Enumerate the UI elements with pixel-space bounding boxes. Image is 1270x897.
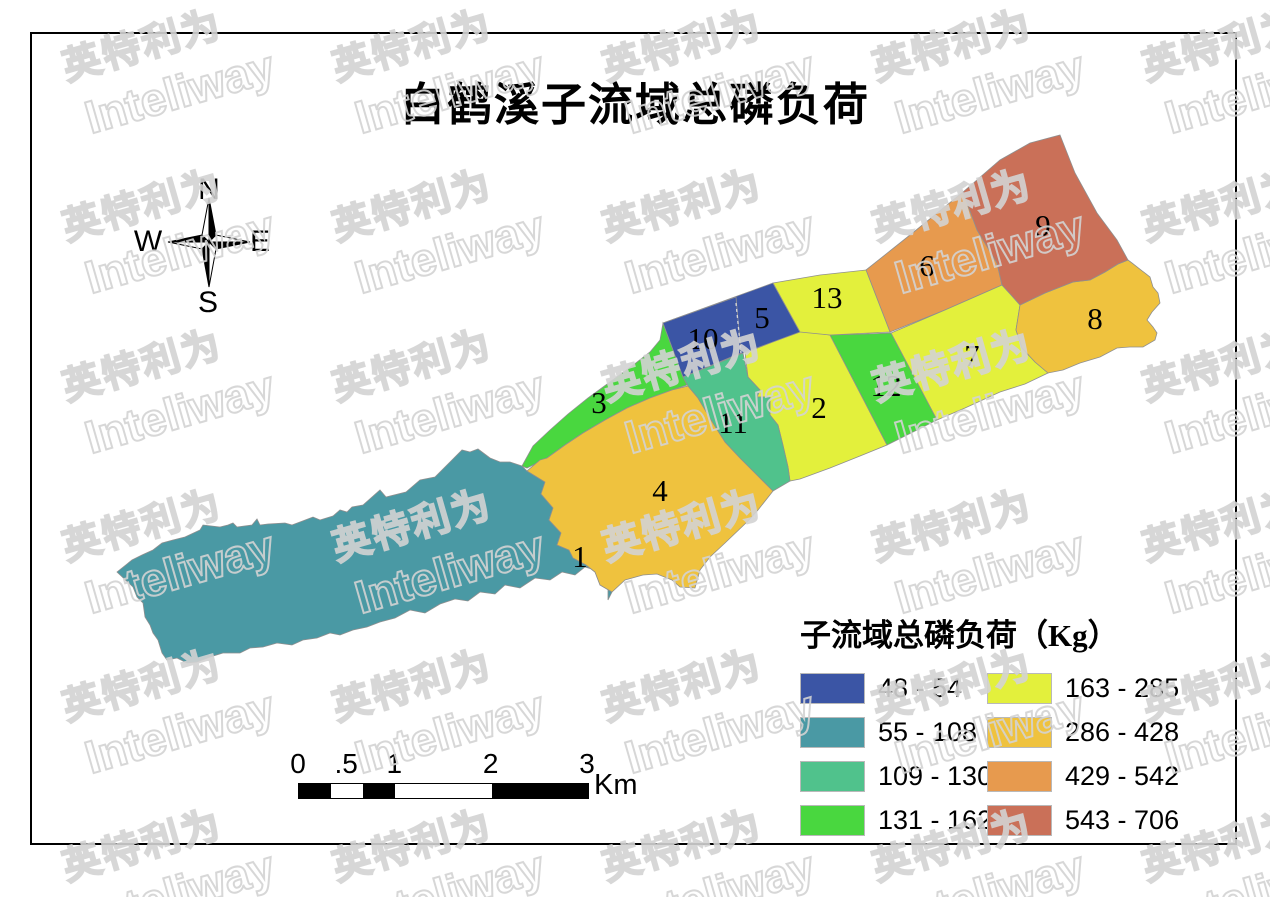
legend-item: 286 - 428	[987, 717, 1174, 748]
scale-bar-track	[298, 783, 589, 799]
legend: 子流域总磷负荷（Kg） 48 - 5455 - 108109 - 130131 …	[800, 610, 1200, 836]
scale-bar-tick: 3	[557, 748, 617, 780]
compass-east-label: E	[238, 225, 282, 259]
region-label-1: 1	[572, 539, 588, 574]
scale-bar-segment	[331, 784, 363, 798]
region-label-12: 12	[871, 368, 902, 403]
region-label-7: 7	[964, 338, 980, 373]
compass-south-label: S	[186, 286, 230, 320]
map-document: 12345678910111213 白鹤溪子流域总磷负荷 N W E S 子流域…	[0, 0, 1270, 897]
legend-range-label: 163 - 285	[1065, 673, 1179, 704]
legend-range-label: 109 - 130	[878, 761, 992, 792]
region-label-8: 8	[1087, 301, 1103, 336]
legend-range-label: 543 - 706	[1065, 805, 1179, 836]
scale-bar-tick: 1	[364, 748, 424, 780]
legend-item: 163 - 285	[987, 673, 1174, 704]
compass-west-label: W	[126, 225, 170, 259]
scale-bar-segment	[395, 784, 492, 798]
region-label-3: 3	[591, 385, 607, 420]
region-label-5: 5	[754, 300, 770, 335]
legend-swatch	[987, 717, 1052, 748]
region-label-11: 11	[718, 405, 748, 440]
legend-item: 429 - 542	[987, 761, 1174, 792]
legend-swatch	[987, 805, 1052, 836]
scale-bar-segment	[492, 784, 588, 798]
legend-range-label: 131 - 162	[878, 805, 992, 836]
region-label-6: 6	[919, 248, 935, 283]
scale-bar-tick: 2	[461, 748, 521, 780]
region-1	[117, 449, 612, 663]
region-label-10: 10	[688, 321, 719, 356]
legend-swatch	[987, 673, 1052, 704]
legend-item: 109 - 130	[800, 761, 987, 792]
legend-item: 48 - 54	[800, 673, 987, 704]
legend-title: 子流域总磷负荷（Kg）	[800, 610, 1200, 655]
legend-item: 55 - 108	[800, 717, 987, 748]
region-label-4: 4	[652, 473, 668, 508]
compass-north-label: N	[187, 173, 231, 207]
legend-swatch	[800, 673, 865, 704]
region-label-13: 13	[812, 280, 843, 315]
legend-range-label: 286 - 428	[1065, 717, 1179, 748]
legend-range-label: 55 - 108	[878, 717, 977, 748]
legend-range-label: 429 - 542	[1065, 761, 1179, 792]
legend-item: 543 - 706	[987, 805, 1174, 836]
legend-swatch	[800, 805, 865, 836]
scale-bar-segment	[363, 784, 395, 798]
legend-swatch	[987, 761, 1052, 792]
legend-swatch	[800, 717, 865, 748]
region-label-2: 2	[811, 390, 827, 425]
legend-swatch	[800, 761, 865, 792]
legend-range-label: 48 - 54	[878, 673, 962, 704]
map-title: 白鹤溪子流域总磷负荷	[0, 68, 1270, 133]
subwatershed-regions	[117, 135, 1160, 663]
legend-grid: 48 - 5455 - 108109 - 130131 - 162163 - 2…	[800, 673, 1200, 836]
legend-item: 131 - 162	[800, 805, 987, 836]
scale-bar-segment	[299, 784, 331, 798]
region-label-9: 9	[1035, 208, 1051, 243]
